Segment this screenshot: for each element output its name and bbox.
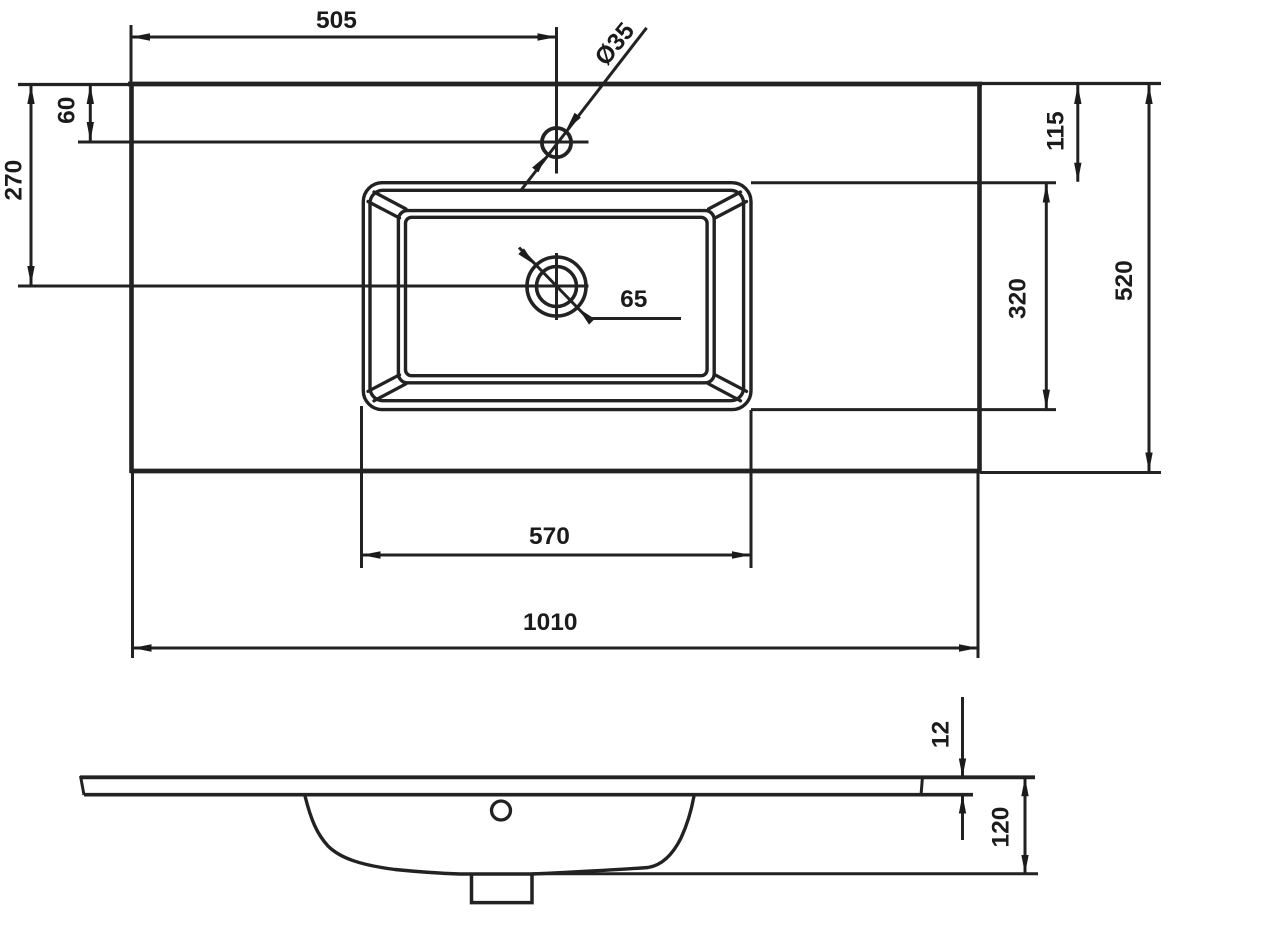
- svg-text:1010: 1010: [523, 609, 578, 636]
- svg-text:505: 505: [316, 7, 357, 34]
- svg-text:12: 12: [927, 721, 954, 748]
- svg-text:320: 320: [1004, 278, 1031, 319]
- svg-text:520: 520: [1111, 260, 1138, 301]
- svg-text:115: 115: [1043, 111, 1070, 151]
- svg-text:60: 60: [54, 97, 81, 124]
- svg-text:570: 570: [529, 523, 570, 550]
- svg-text:120: 120: [987, 807, 1014, 848]
- svg-text:65: 65: [620, 286, 647, 313]
- svg-text:270: 270: [1, 160, 28, 201]
